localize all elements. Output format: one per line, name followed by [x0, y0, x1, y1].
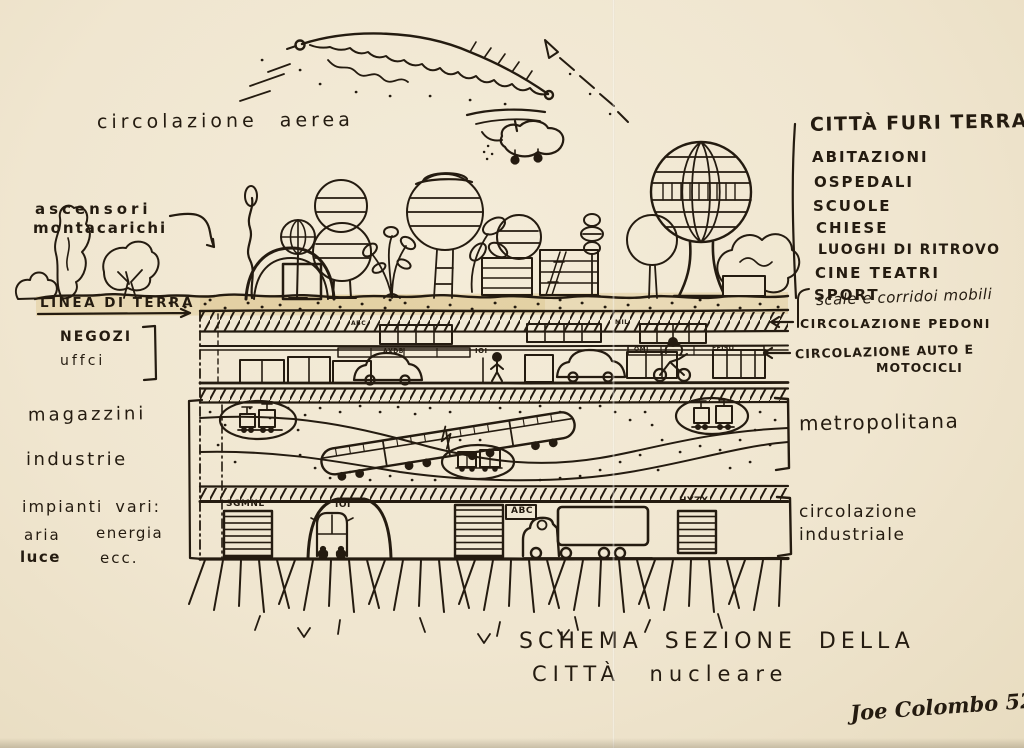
industrial-level	[224, 499, 716, 558]
caption-subtitle: CITTÀ nucleare	[532, 663, 788, 685]
metro-tunnel-trams	[220, 401, 296, 439]
plant-etc-label: ecc.	[100, 551, 139, 567]
industrial-tunnel-sign: IOI	[335, 501, 351, 510]
metro-bracket	[775, 398, 789, 470]
plants-label: impianti vari:	[22, 499, 161, 516]
elevators-label: montacarichi	[33, 221, 167, 237]
warehouses-label: magazzini	[28, 405, 147, 425]
metro-label: metropolitana	[799, 411, 960, 435]
plant-light-label: luce	[20, 550, 61, 566]
above-ground-item: CINE TEATRI	[815, 266, 940, 282]
car-icon	[557, 350, 625, 382]
shop-sign: ABC	[351, 321, 366, 327]
plant-energy-label: energia	[96, 526, 163, 542]
industrial-circulation-label: circolazione	[799, 504, 918, 522]
rocket-trail-icon	[545, 40, 628, 122]
motorcycle-icon	[654, 338, 690, 381]
industrial-door-sign: SGMNL	[226, 500, 265, 509]
shop-sign: FEISO	[712, 346, 734, 352]
above-ground-item: ABITAZIONI	[812, 150, 929, 166]
shop-sign: IOI	[475, 348, 488, 355]
industrial-bracket	[777, 497, 791, 556]
air-circulation-label: circolazione aerea	[97, 111, 354, 133]
auto-circulation-label: MOTOCICLI	[876, 361, 963, 374]
industrial-circulation-label: industriale	[799, 527, 905, 545]
metro-tunnel-trams	[676, 398, 748, 434]
above-ground-heading: CITTÀ FURI TERRA	[810, 112, 1024, 136]
drawing-sheet: circolazione aerea CITTÀ FURI TERRA ABIT…	[0, 0, 1024, 748]
truck-front-icon	[311, 513, 353, 557]
helicopter-icon	[467, 110, 563, 164]
pedestrian-icon	[491, 353, 503, 381]
above-ground-item: CHIESE	[816, 221, 888, 237]
shop-sign: OMI	[634, 347, 649, 353]
caption-title: SCHEMA SEZIONE DELLA	[519, 630, 915, 653]
elevators-label: ascensori	[35, 202, 152, 218]
offices-label: uffci	[60, 354, 105, 369]
ground-line-label: LINEA DI TERRA	[40, 296, 195, 310]
above-ground-item: LUOGHI DI RITROVO	[818, 243, 1001, 258]
industrial-door-sign: HYZX	[679, 497, 709, 506]
pedestrian-circulation-label: CIRCOLAZIONE PEDONI	[800, 317, 991, 330]
above-ground-bracket	[793, 124, 796, 298]
metro-level	[200, 398, 788, 482]
shop-sign: MIL	[615, 320, 629, 326]
industries-label: industrie	[26, 451, 128, 470]
elevator-arrow	[170, 214, 214, 247]
shop-sign: AXDB	[383, 349, 404, 355]
above-ground-item: SCUOLE	[813, 199, 892, 215]
truck-side-icon	[523, 507, 652, 558]
flying-wing-icon	[240, 34, 553, 104]
shops-label: NEGOZI	[60, 330, 132, 345]
industrial-sign: ABC	[511, 507, 533, 516]
plant-air-label: aria	[24, 528, 61, 544]
metro-tunnel-cars	[442, 445, 514, 479]
shops-bracket	[143, 326, 156, 380]
above-ground-item: OSPEDALI	[814, 175, 914, 191]
